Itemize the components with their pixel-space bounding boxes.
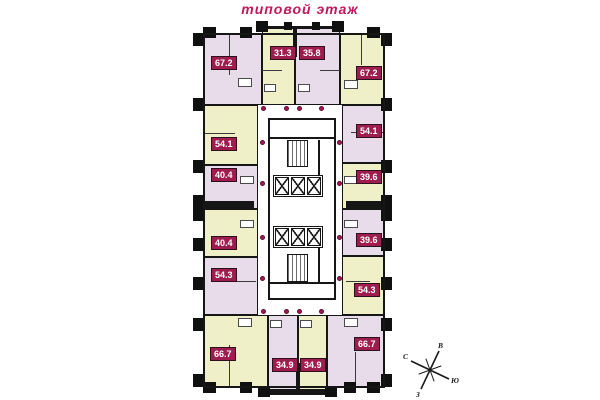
wall-column bbox=[312, 22, 320, 30]
fixture bbox=[238, 318, 252, 327]
fixture bbox=[344, 220, 358, 228]
floor-plan-page: типовой этаж bbox=[0, 0, 600, 400]
core-wall bbox=[318, 248, 320, 282]
wall-column bbox=[284, 22, 292, 30]
wall-column bbox=[381, 195, 392, 221]
area-badge: 34.9 bbox=[272, 358, 298, 372]
door-marker bbox=[260, 276, 265, 281]
apartment-top-3 bbox=[295, 28, 340, 105]
compass-south-label: Ю bbox=[450, 376, 459, 385]
partition-wall bbox=[203, 133, 235, 134]
wall-column bbox=[367, 27, 380, 38]
door-marker bbox=[260, 181, 265, 186]
area-badge: 67.2 bbox=[211, 56, 237, 70]
structural-wall bbox=[262, 26, 342, 29]
partition-wall bbox=[320, 70, 340, 71]
apartment-left-4 bbox=[203, 257, 258, 315]
door-marker bbox=[337, 235, 342, 240]
wall-column bbox=[256, 21, 268, 32]
fixture bbox=[238, 78, 252, 87]
wall-column bbox=[381, 277, 392, 290]
core-wall bbox=[270, 137, 334, 139]
compass-west-label: З bbox=[415, 390, 420, 399]
area-badge: 40.4 bbox=[211, 236, 237, 250]
wall-column bbox=[344, 382, 356, 393]
staircase-lower bbox=[287, 254, 308, 282]
area-badge: 66.7 bbox=[354, 337, 380, 351]
area-badge: 66.7 bbox=[210, 347, 236, 361]
area-badge: 34.9 bbox=[300, 358, 326, 372]
wall-column bbox=[381, 33, 392, 46]
door-marker bbox=[284, 106, 289, 111]
partition-wall bbox=[361, 33, 362, 65]
wall-column bbox=[381, 318, 392, 331]
structural-wall bbox=[266, 389, 329, 395]
fixture bbox=[300, 320, 312, 328]
wall-column bbox=[193, 238, 204, 251]
wall-column bbox=[332, 21, 344, 32]
wall-column bbox=[203, 382, 216, 393]
area-badge: 54.3 bbox=[354, 283, 380, 297]
wall-column bbox=[240, 27, 252, 38]
door-marker bbox=[337, 276, 342, 281]
fixture bbox=[240, 176, 254, 184]
compass-rose: В С Ю З bbox=[402, 338, 462, 400]
fixture bbox=[240, 220, 254, 228]
elevator-shaft bbox=[307, 177, 321, 195]
area-badge: 67.2 bbox=[356, 66, 382, 80]
elevator-bank-upper bbox=[273, 175, 323, 197]
partition-wall bbox=[355, 352, 356, 382]
area-badge: 54.1 bbox=[211, 137, 237, 151]
wall-column bbox=[381, 374, 392, 387]
wall-column bbox=[203, 27, 216, 38]
elevator-shaft bbox=[291, 228, 305, 246]
fixture bbox=[298, 84, 310, 92]
area-badge: 31.3 bbox=[270, 46, 296, 60]
fixture bbox=[344, 318, 358, 327]
compass-east-label: В bbox=[437, 341, 443, 350]
area-badge: 39.6 bbox=[356, 170, 382, 184]
partition-wall bbox=[262, 70, 282, 71]
page-title: типовой этаж bbox=[0, 1, 600, 17]
door-marker bbox=[337, 181, 342, 186]
door-marker bbox=[297, 309, 302, 314]
wall-column bbox=[193, 98, 204, 111]
elevator-shaft bbox=[275, 177, 289, 195]
fixture bbox=[264, 84, 276, 92]
area-badge: 35.8 bbox=[299, 46, 325, 60]
fixture bbox=[270, 320, 282, 328]
door-marker bbox=[297, 106, 302, 111]
door-marker bbox=[284, 309, 289, 314]
area-badge: 39.6 bbox=[356, 233, 382, 247]
partition-wall bbox=[346, 281, 370, 282]
wall-column bbox=[381, 238, 392, 251]
area-badge: 54.3 bbox=[211, 268, 237, 282]
area-badge: 40.4 bbox=[211, 168, 237, 182]
door-marker bbox=[319, 106, 324, 111]
wall-column bbox=[193, 277, 204, 290]
apartment-left-1 bbox=[203, 105, 258, 165]
wall-column bbox=[193, 318, 204, 331]
wall-column bbox=[367, 382, 380, 393]
compass-north-label: С bbox=[403, 352, 409, 361]
wall-column bbox=[381, 160, 392, 173]
wall-column bbox=[193, 195, 204, 221]
door-marker bbox=[261, 309, 266, 314]
door-marker bbox=[319, 309, 324, 314]
core-wall bbox=[270, 282, 334, 284]
staircase-upper bbox=[287, 140, 308, 167]
elevator-bank-lower bbox=[273, 226, 323, 248]
fixture bbox=[344, 80, 358, 89]
door-marker bbox=[337, 140, 342, 145]
wall-column bbox=[240, 382, 252, 393]
elevator-shaft bbox=[291, 177, 305, 195]
wall-column bbox=[325, 386, 337, 397]
door-marker bbox=[260, 140, 265, 145]
core-wall bbox=[318, 140, 320, 175]
elevator-shaft bbox=[275, 228, 289, 246]
wall-column bbox=[258, 386, 270, 397]
wall-column bbox=[381, 98, 392, 111]
apartment-top-2 bbox=[262, 28, 295, 105]
elevator-shaft bbox=[307, 228, 321, 246]
area-badge: 54.1 bbox=[356, 124, 382, 138]
door-marker bbox=[261, 106, 266, 111]
door-marker bbox=[260, 235, 265, 240]
wall-column bbox=[193, 160, 204, 173]
